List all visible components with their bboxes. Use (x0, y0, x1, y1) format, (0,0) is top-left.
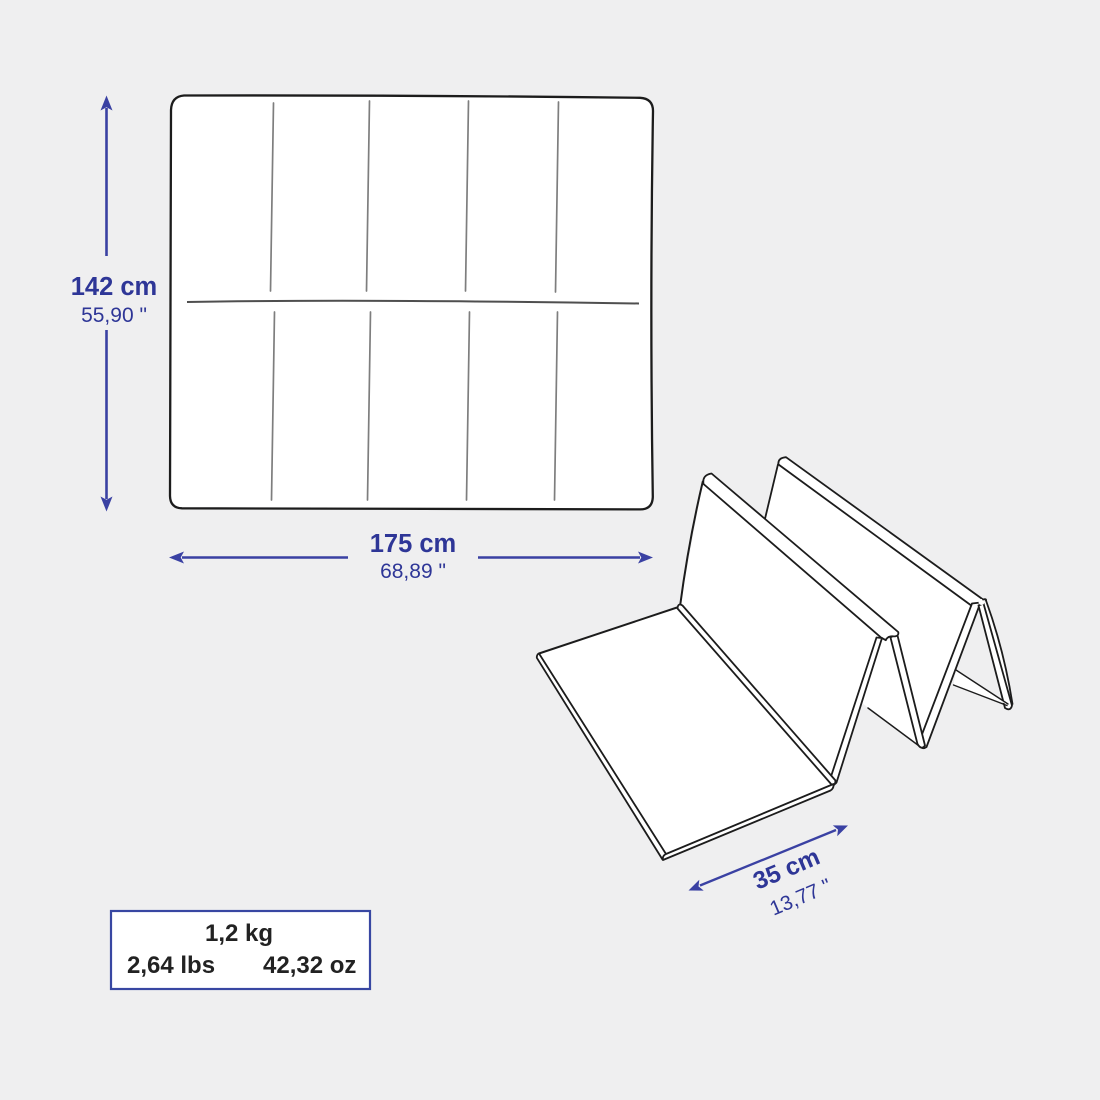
svg-text:175 cm: 175 cm (370, 530, 457, 558)
svg-text:68,89 ": 68,89 " (380, 560, 446, 583)
svg-text:1,2 kg: 1,2 kg (205, 920, 273, 947)
svg-text:55,90 ": 55,90 " (81, 304, 147, 327)
svg-text:142 cm: 142 cm (71, 273, 158, 301)
svg-text:42,32 oz: 42,32 oz (263, 952, 356, 979)
svg-text:2,64 lbs: 2,64 lbs (127, 952, 215, 979)
